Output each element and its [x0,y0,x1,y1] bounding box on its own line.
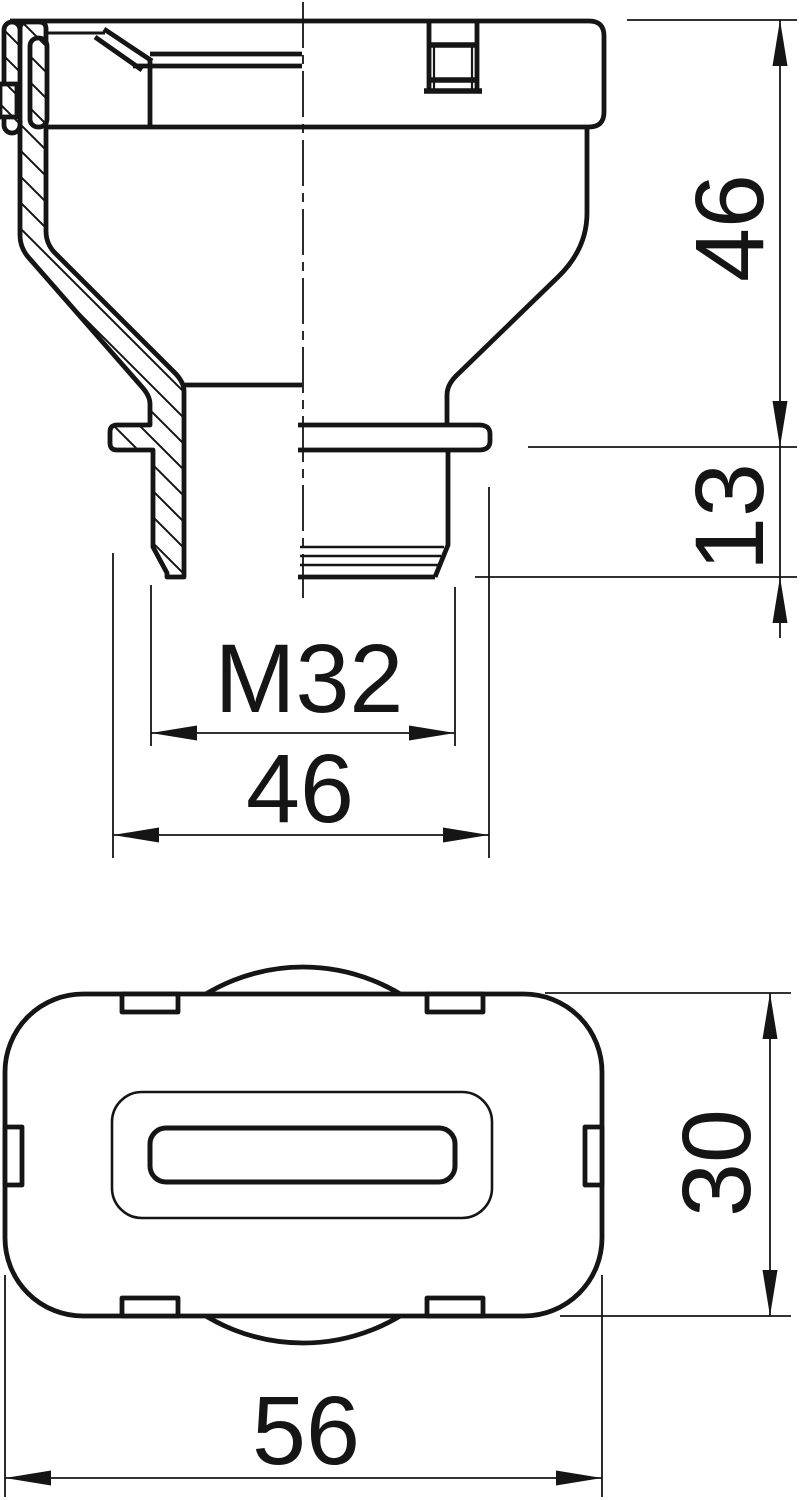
latch-window [424,21,482,91]
clip-barb [0,84,17,117]
plan-view: 30 56 [5,967,791,1497]
tab-right-edge [585,1127,602,1185]
arrowhead-right [556,1471,602,1486]
cap-outline [10,21,604,127]
arrowhead-up [773,20,788,66]
arrowhead-down [773,401,788,447]
dim-label-30: 30 [662,1109,771,1217]
arrowhead-up-outside [773,577,788,623]
arrowhead-up [763,993,778,1039]
arrowhead-left [151,726,197,741]
arrowhead-down [763,1270,778,1316]
lid-step-diagonal-1 [104,29,152,61]
dim-label-m32: M32 [215,624,404,733]
tab-bottom-right [427,1298,483,1316]
dimension-46-height: 46 [528,20,797,447]
dim-label-46-flange: 46 [246,734,354,843]
funnel-outline-right [447,127,587,425]
tab-bottom-left [122,1298,178,1316]
dim-label-56: 56 [252,1376,360,1485]
dim-label-46-height: 46 [675,174,784,282]
tab-top-right [427,994,483,1012]
slot-inner [150,1128,455,1182]
dim-label-13: 13 [675,463,784,571]
dimension-13-thread-length: 13 [475,447,797,638]
tab-top-left [122,994,178,1012]
thread-runout-lines [300,547,444,565]
dimension-m32-thread: M32 [151,585,455,746]
latch-bars [429,45,477,80]
flange-right [298,425,490,450]
stub-outline-right [435,450,448,577]
tab-left-edge [5,1127,22,1185]
arrowhead-right [443,828,489,843]
arrowhead-left [5,1471,51,1486]
arrowhead-left [113,828,159,843]
arrowhead-right [409,726,455,741]
drawing-canvas: 46 13 M32 46 [0,0,801,1500]
front-section-view: 46 13 M32 46 [0,2,797,858]
technical-drawing: 46 13 M32 46 [0,0,801,1500]
clip-inner-finger [30,38,47,127]
